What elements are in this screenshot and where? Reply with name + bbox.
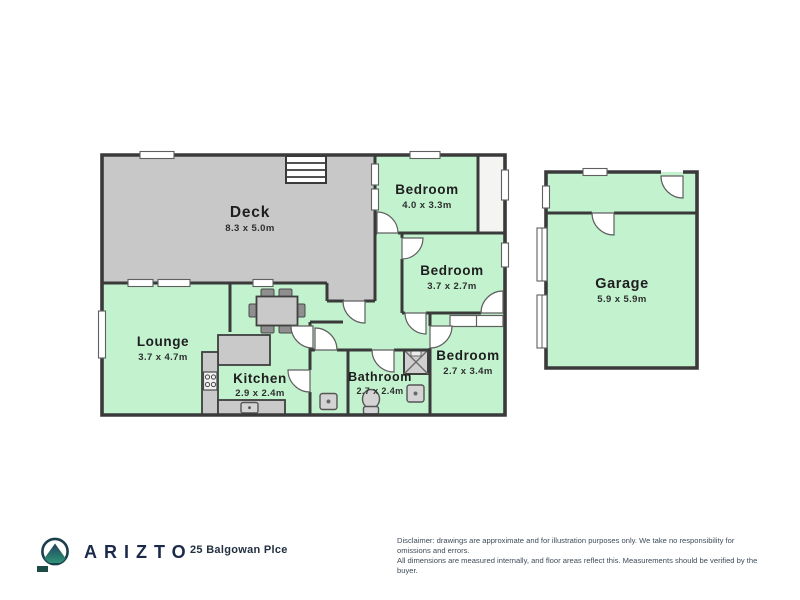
window: [253, 280, 273, 287]
bathroom-label: Bathroom: [348, 370, 412, 384]
window: [502, 243, 509, 267]
disclaimer-line1: Disclaimer: drawings are approximate and…: [397, 536, 759, 556]
window: [99, 311, 106, 358]
window: [128, 280, 153, 287]
bedroom1-label: Bedroom: [395, 182, 458, 197]
brand-name: ARIZTO: [84, 542, 193, 563]
window: [372, 164, 379, 185]
kitchen-label: Kitchen: [233, 371, 287, 386]
deck-dims: 8.3 x 5.0m: [225, 223, 274, 234]
toilet-base: [364, 407, 379, 415]
kitchen-counter: [218, 335, 270, 365]
bedroom3-dims: 2.7 x 3.4m: [443, 366, 492, 377]
arizto-logo-icon: [38, 536, 72, 568]
bedroom3-wardrobe: [450, 316, 503, 327]
bedroom2-dims: 3.7 x 2.7m: [427, 281, 476, 292]
deck-stairs: [286, 156, 326, 183]
window: [410, 152, 440, 159]
wc-sink-drain: [327, 400, 331, 404]
garage-building: [537, 169, 697, 369]
window: [140, 152, 174, 159]
floor-plan-svg: Deck 8.3 x 5.0m Bedroom 4.0 x 3.3m Bedro…: [0, 0, 800, 528]
shower-head: [411, 351, 421, 356]
disclaimer-text: Disclaimer: drawings are approximate and…: [397, 536, 759, 576]
dining-table: [257, 297, 298, 326]
lounge-label: Lounge: [137, 334, 189, 349]
bedroom2-label: Bedroom: [420, 263, 483, 278]
bathroom-sink-drain: [414, 392, 418, 396]
garage-label: Garage: [595, 276, 649, 292]
window: [583, 169, 607, 176]
bedroom3-label: Bedroom: [436, 348, 499, 363]
bedroom1-closet-area: [480, 157, 504, 232]
footer: ARIZTO 25 Balgowan Plce Disclaimer: draw…: [0, 528, 800, 588]
property-address: 25 Balgowan Plce: [190, 544, 288, 556]
window: [158, 280, 190, 287]
window: [543, 186, 550, 208]
kitchen-dims: 2.9 x 2.4m: [235, 388, 284, 399]
window: [502, 170, 509, 200]
garage-dims: 5.9 x 5.9m: [597, 294, 646, 305]
lounge-dims: 3.7 x 4.7m: [138, 352, 187, 363]
garage-area: [546, 172, 697, 368]
window: [372, 189, 379, 210]
brand-row: ARIZTO: [38, 536, 193, 568]
floorplan-page: Deck 8.3 x 5.0m Bedroom 4.0 x 3.3m Bedro…: [0, 0, 800, 600]
bedroom1-dims: 4.0 x 3.3m: [402, 200, 451, 211]
deck-label: Deck: [230, 204, 270, 221]
logo-chip: [37, 566, 48, 572]
bathroom-dims: 2.7 x 2.4m: [356, 386, 403, 396]
kitchen-sink-tap: [248, 406, 251, 409]
disclaimer-line2: All dimensions are measured internally, …: [397, 556, 759, 576]
stove: [204, 372, 218, 390]
